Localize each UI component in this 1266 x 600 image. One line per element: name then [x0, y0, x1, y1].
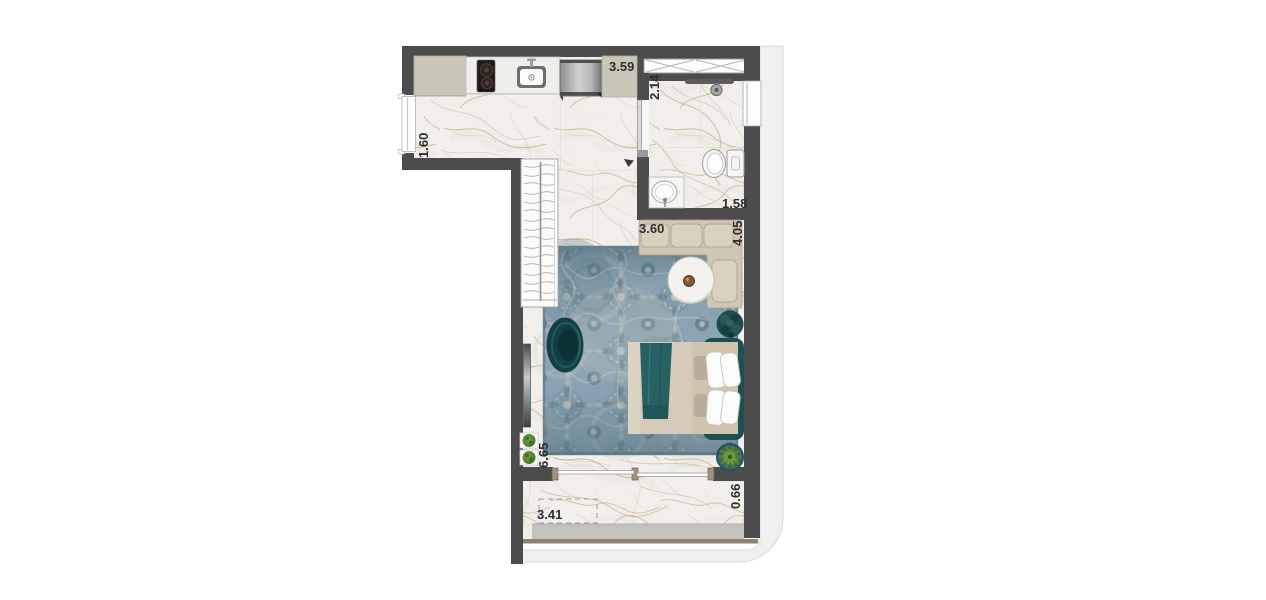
svg-text:6.65: 6.65: [536, 443, 551, 468]
svg-text:3.60: 3.60: [639, 221, 664, 236]
svg-text:3.41: 3.41: [537, 507, 562, 522]
svg-text:1.60: 1.60: [416, 133, 431, 158]
svg-text:2.14: 2.14: [647, 74, 662, 100]
svg-text:1.58: 1.58: [722, 196, 747, 211]
svg-text:4.05: 4.05: [730, 221, 745, 246]
svg-text:3.59: 3.59: [609, 59, 634, 74]
svg-text:0.66: 0.66: [728, 484, 743, 509]
